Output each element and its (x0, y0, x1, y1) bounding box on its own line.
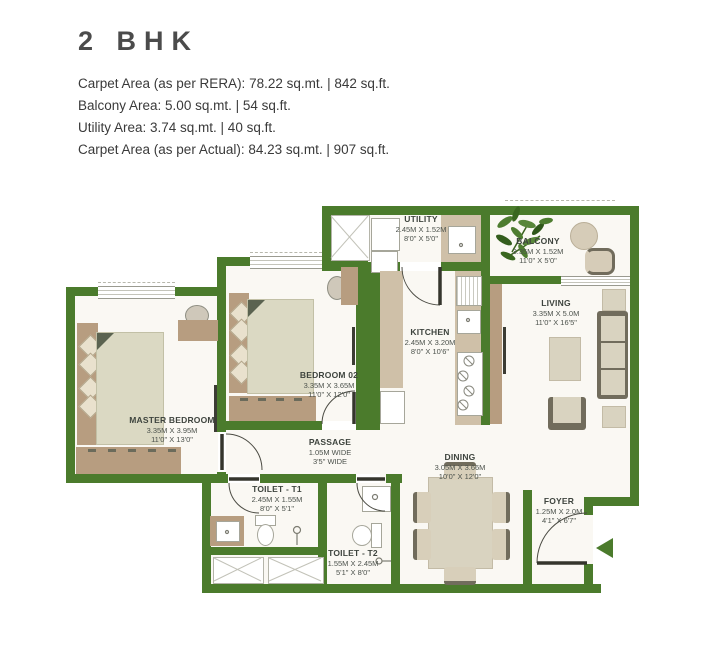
wall (481, 276, 561, 284)
dining-chair (492, 492, 510, 523)
duct-shaft (268, 557, 324, 584)
duct-shaft (213, 557, 264, 584)
wall (441, 262, 481, 271)
floor-plan: UTILITY 2.45M X 1.52M 8'0" X 5'0" BALCON… (0, 0, 720, 651)
wardrobe-handle (240, 398, 248, 401)
room-label-dining: DINING 3.05M X 3.66M 10'0" X 12'0" (435, 453, 486, 482)
drainboard (456, 276, 482, 306)
utility-shelf (371, 251, 398, 273)
wall (202, 547, 327, 555)
wardrobe-handle (258, 398, 266, 401)
entry-threshold (584, 514, 593, 564)
refrigerator (380, 391, 405, 424)
wall (66, 474, 228, 483)
wardrobe-handle (148, 449, 156, 452)
window-sill (250, 252, 322, 253)
blanket-fold (248, 300, 265, 317)
dresser (178, 320, 218, 341)
window (98, 286, 175, 299)
wall (523, 490, 532, 593)
room-label-toilet-t2: TOILET - T2 1.55M X 2.45M 5'1" X 8'0" (328, 549, 379, 578)
room-label-living: LIVING 3.35M X 5.0M 11'0" X 16'5" (533, 299, 580, 328)
room-label-toilet-t1: TOILET - T1 2.45M X 1.55M 8'0" X 5'1" (252, 485, 303, 514)
wall (584, 497, 639, 506)
room-label-balcony: BALCONY 3.35M X 1.52M 11'0" X 5'0" (513, 237, 564, 266)
floor-plan-page: 2 BHK Carpet Area (as per RERA): 78.22 s… (0, 0, 720, 651)
duct-shaft (331, 215, 370, 261)
wc-bowl (352, 525, 372, 546)
entry-arrow (596, 538, 613, 558)
wall (356, 262, 380, 430)
duct-ledge (490, 284, 502, 424)
room-label-master-bedroom: MASTER BEDROOM 3.35M X 3.95M 11'0" X 13'… (129, 416, 214, 445)
window-sill (98, 282, 175, 283)
blanket-fold (97, 333, 114, 350)
wall (630, 206, 639, 506)
wall (584, 564, 593, 593)
wash-basin (216, 521, 240, 542)
wall (217, 296, 226, 432)
dining-chair (444, 567, 476, 585)
side-table (602, 289, 626, 311)
kitchen-sink (457, 310, 481, 334)
wall (260, 474, 356, 483)
tv-panel (352, 327, 355, 365)
sofa-cushion (601, 343, 625, 368)
armchair-cushion (553, 397, 581, 423)
wall (481, 206, 490, 284)
dining-chair (413, 492, 431, 523)
wall (66, 287, 75, 483)
room-label-passage: PASSAGE 1.05M WIDE 3'5" WIDE (309, 438, 352, 467)
room-label-foyer: FOYER 1.25M X 2.0M 4'1" X 6'7" (536, 497, 583, 526)
wall (391, 474, 400, 593)
wall (175, 287, 226, 296)
wc-tank (371, 523, 382, 548)
wardrobe-handle (168, 449, 176, 452)
wardrobe-handle (88, 449, 96, 452)
room-label-utility: UTILITY 2.45M X 1.52M 8'0" X 5'0" (396, 215, 447, 244)
sofa-cushion (601, 316, 625, 341)
utility-sink (448, 226, 476, 254)
window (250, 256, 322, 269)
side-table (602, 406, 626, 428)
wall (217, 472, 226, 483)
wardrobe-handle (108, 449, 116, 452)
wall (202, 584, 601, 593)
dining-table (428, 477, 493, 569)
stove (457, 352, 483, 416)
dining-chair (492, 529, 510, 560)
kitchen-counter-left (380, 271, 403, 388)
sofa-cushion (601, 370, 625, 395)
window-sill (505, 200, 615, 201)
sliding-window (561, 276, 630, 286)
shower-tray (362, 486, 391, 512)
tv-panel (503, 327, 506, 374)
wardrobe-handle (276, 398, 284, 401)
wc-bowl (257, 524, 274, 546)
dresser (341, 267, 358, 305)
balcony-table (570, 222, 598, 250)
room-label-bedroom02: BEDROOM 02 3.35M X 3.65M 11'0" X 12'0" (300, 371, 358, 400)
balcony-chair (585, 248, 615, 275)
dining-chair (413, 529, 431, 560)
wardrobe-handle (128, 449, 136, 452)
wall (217, 421, 322, 430)
wall (584, 506, 593, 515)
room-label-kitchen: KITCHEN 2.45M X 3.20M 8'0" X 10'6" (405, 328, 456, 357)
coffee-table (549, 337, 581, 381)
